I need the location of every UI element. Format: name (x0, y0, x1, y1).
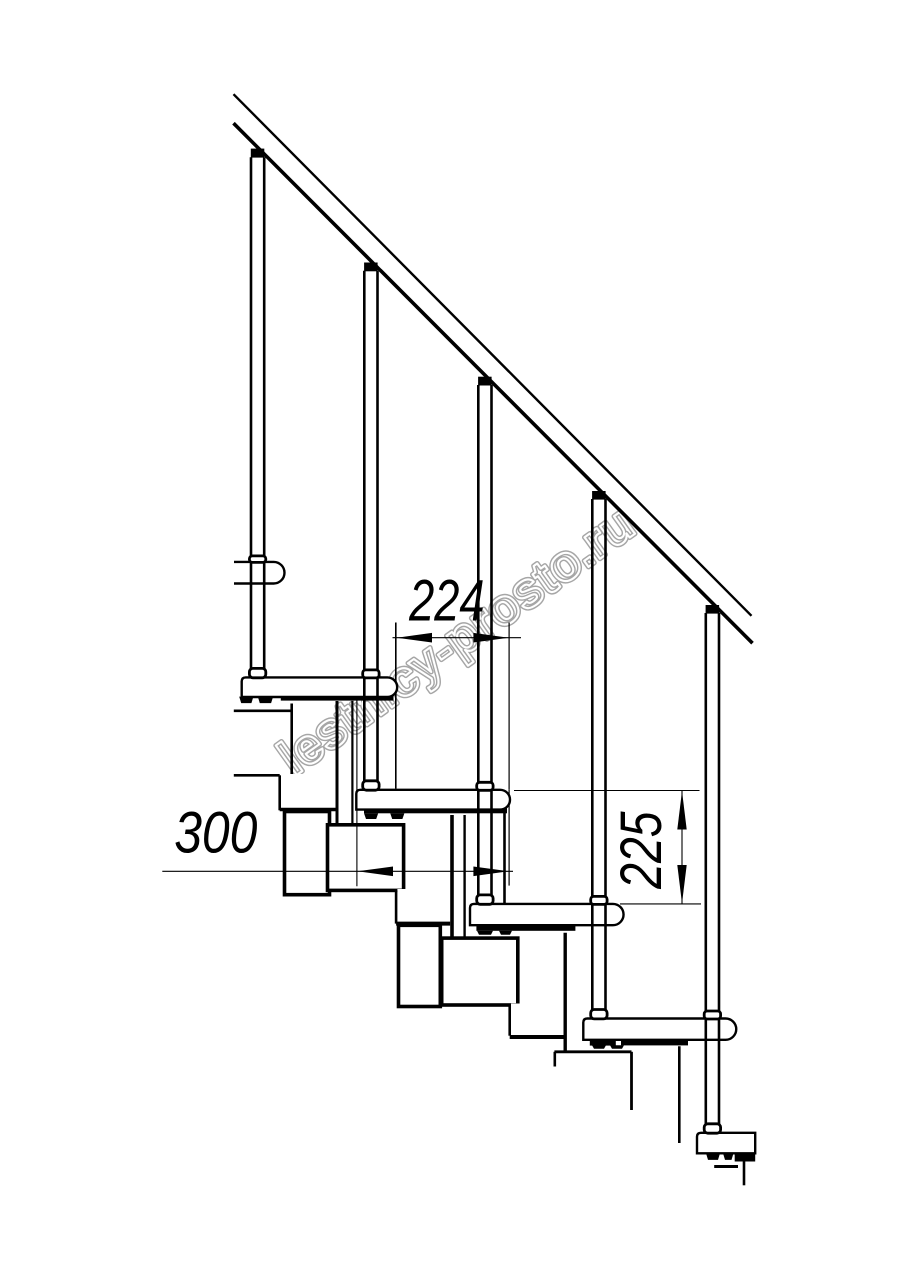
svg-text:224: 224 (408, 569, 484, 634)
svg-text:225: 225 (609, 811, 674, 890)
svg-text:300: 300 (174, 801, 257, 865)
